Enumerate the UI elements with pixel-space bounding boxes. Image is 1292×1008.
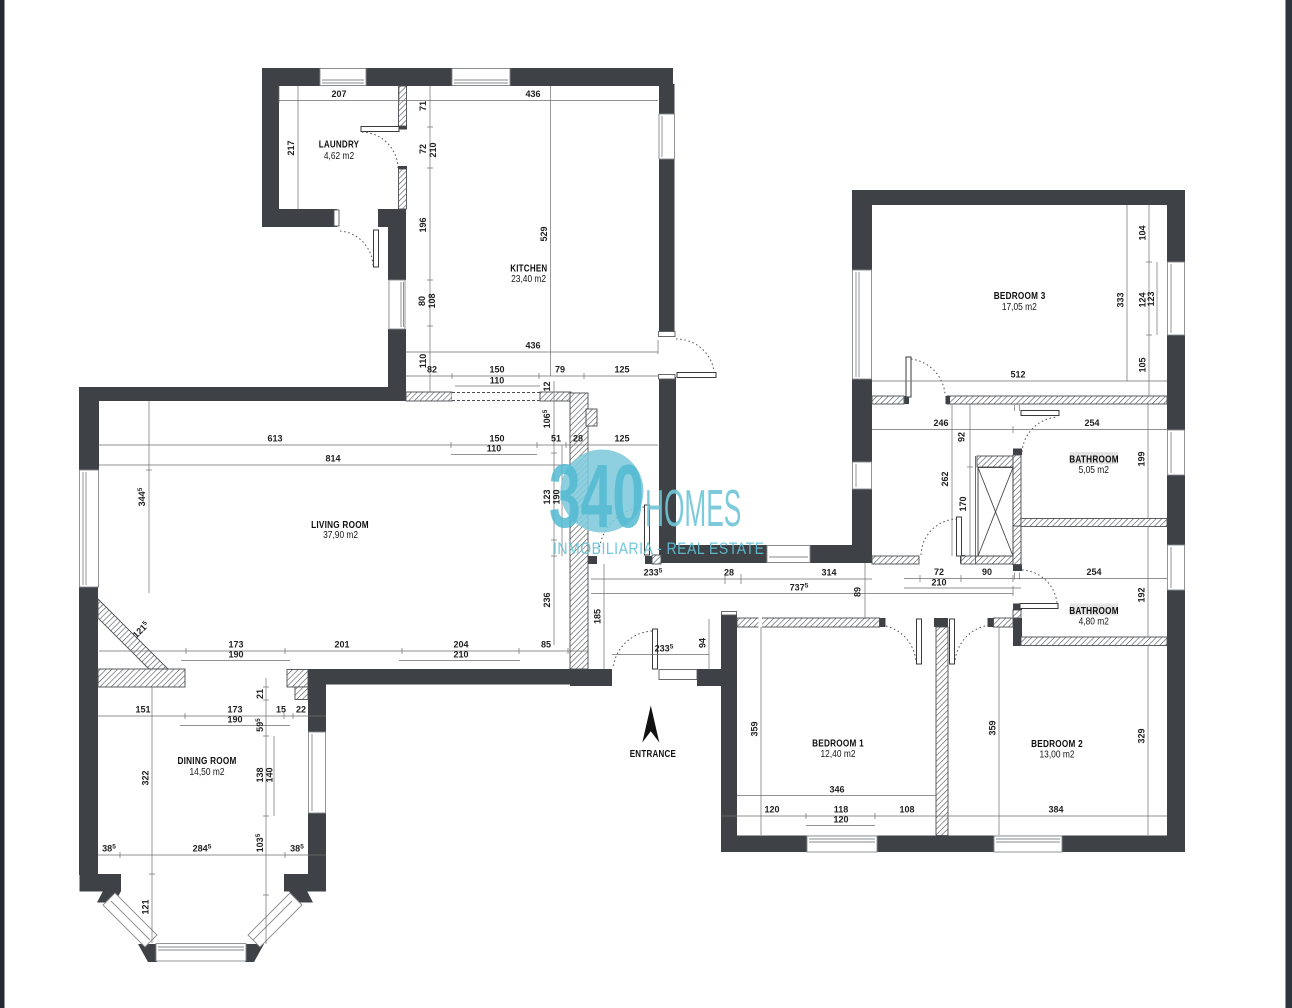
svg-text:72: 72: [418, 144, 428, 154]
svg-text:333: 333: [1116, 292, 1126, 307]
svg-text:529: 529: [539, 226, 549, 241]
svg-text:5,05 m2: 5,05 m2: [1079, 464, 1109, 475]
svg-text:384: 384: [1048, 805, 1063, 815]
svg-text:120: 120: [764, 805, 779, 815]
svg-text:79: 79: [555, 365, 565, 375]
svg-text:LAUNDRY: LAUNDRY: [319, 139, 359, 150]
svg-text:51: 51: [551, 434, 561, 444]
svg-text:105: 105: [1138, 357, 1148, 372]
svg-text:613: 613: [267, 434, 282, 444]
svg-text:72: 72: [934, 567, 944, 577]
svg-text:314: 314: [821, 568, 836, 578]
svg-text:196: 196: [418, 217, 428, 232]
svg-text:359: 359: [988, 720, 998, 735]
svg-text:BATHROOM: BATHROOM: [1069, 454, 1119, 465]
svg-text:329: 329: [1137, 728, 1147, 743]
svg-text:150: 150: [489, 365, 504, 375]
svg-text:151: 151: [135, 705, 150, 715]
svg-text:28: 28: [724, 568, 734, 578]
svg-text:199: 199: [1137, 451, 1147, 466]
svg-text:190: 190: [227, 715, 242, 725]
svg-text:BATHROOM: BATHROOM: [1069, 605, 1119, 616]
svg-text:ENTRANCE: ENTRANCE: [630, 748, 676, 759]
svg-text:12,40 m2: 12,40 m2: [821, 748, 856, 759]
svg-text:125: 125: [614, 365, 629, 375]
svg-text:210: 210: [931, 578, 946, 588]
svg-text:246: 246: [933, 418, 948, 428]
svg-text:94: 94: [698, 638, 708, 648]
svg-text:4,80 m2: 4,80 m2: [1079, 616, 1109, 627]
svg-text:17,05 m2: 17,05 m2: [1002, 301, 1037, 312]
svg-text:110: 110: [487, 444, 502, 454]
svg-text:13,00 m2: 13,00 m2: [1040, 749, 1075, 760]
svg-text:138: 138: [255, 767, 265, 782]
svg-text:DINING ROOM: DINING ROOM: [177, 755, 236, 766]
svg-text:140: 140: [265, 767, 275, 782]
svg-text:INMOBILIARIA - REAL ESTATE: INMOBILIARIA - REAL ESTATE: [553, 540, 765, 558]
svg-text:262: 262: [940, 471, 950, 486]
svg-text:BEDROOM 3: BEDROOM 3: [994, 290, 1046, 301]
svg-text:14,50 m2: 14,50 m2: [190, 767, 225, 778]
svg-text:512: 512: [1010, 370, 1025, 380]
svg-text:BEDROOM 1: BEDROOM 1: [812, 738, 864, 749]
svg-text:190: 190: [228, 650, 243, 660]
svg-text:192: 192: [1137, 587, 1147, 602]
svg-text:210: 210: [453, 650, 468, 660]
svg-text:322: 322: [141, 770, 151, 785]
svg-text:22: 22: [296, 705, 306, 715]
svg-text:185: 185: [593, 609, 603, 624]
svg-text:37,90 m2: 37,90 m2: [323, 530, 358, 541]
svg-text:173: 173: [227, 705, 242, 715]
svg-text:201: 201: [334, 640, 349, 650]
svg-text:436: 436: [525, 341, 540, 351]
svg-text:346: 346: [829, 785, 844, 795]
svg-text:104: 104: [1138, 225, 1148, 240]
svg-text:23,40 m2: 23,40 m2: [511, 274, 546, 285]
svg-text:85: 85: [541, 640, 551, 650]
svg-text:204: 204: [453, 640, 468, 650]
svg-text:217: 217: [286, 140, 296, 155]
svg-text:21: 21: [255, 689, 265, 699]
svg-text:108: 108: [899, 805, 914, 815]
svg-text:123: 123: [1146, 291, 1156, 306]
svg-text:254: 254: [1086, 567, 1101, 577]
svg-text:89: 89: [853, 587, 863, 597]
svg-text:28: 28: [573, 434, 583, 444]
svg-text:340: 340: [549, 446, 644, 546]
svg-text:110: 110: [490, 376, 505, 386]
svg-text:110: 110: [418, 354, 428, 369]
svg-text:120: 120: [833, 815, 848, 825]
svg-text:121: 121: [141, 899, 151, 914]
svg-text:12: 12: [542, 381, 552, 391]
svg-text:814: 814: [325, 454, 340, 464]
svg-text:359: 359: [750, 721, 760, 736]
svg-text:92: 92: [957, 432, 967, 442]
svg-text:15: 15: [276, 705, 286, 715]
svg-text:71: 71: [418, 101, 428, 111]
svg-text:150: 150: [489, 434, 504, 444]
svg-text:HOMES: HOMES: [645, 479, 741, 537]
svg-text:170: 170: [958, 496, 968, 511]
svg-text:80: 80: [417, 296, 427, 306]
svg-text:KITCHEN: KITCHEN: [510, 263, 547, 274]
svg-text:207: 207: [331, 89, 346, 99]
svg-text:118: 118: [834, 805, 849, 815]
svg-text:82: 82: [427, 365, 437, 375]
svg-text:90: 90: [982, 567, 992, 577]
svg-text:436: 436: [525, 89, 540, 99]
svg-text:108: 108: [427, 293, 437, 308]
svg-text:4,62 m2: 4,62 m2: [324, 150, 354, 161]
svg-text:254: 254: [1084, 418, 1099, 428]
svg-text:210: 210: [428, 142, 438, 157]
svg-text:125: 125: [614, 434, 629, 444]
svg-text:BEDROOM 2: BEDROOM 2: [1031, 738, 1083, 749]
svg-text:173: 173: [228, 640, 243, 650]
svg-text:236: 236: [542, 592, 552, 607]
